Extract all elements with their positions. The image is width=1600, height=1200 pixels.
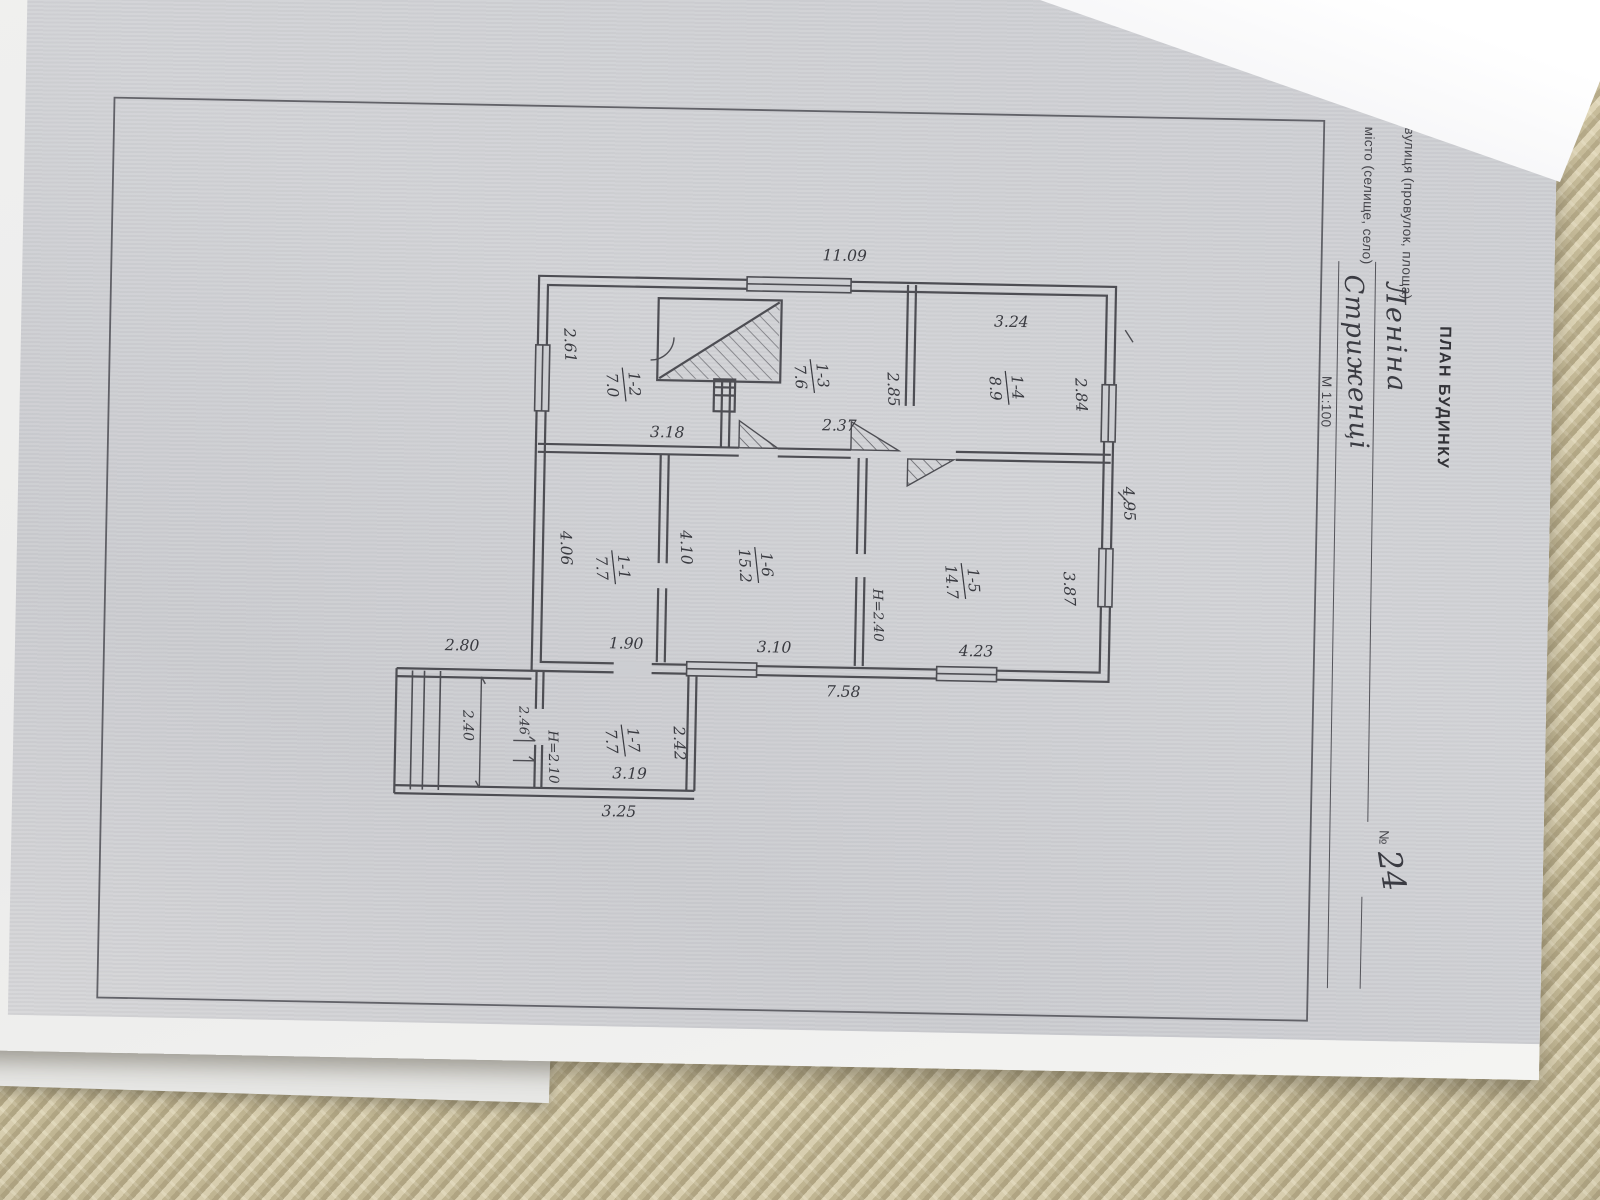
door-leaf-icon	[851, 422, 900, 451]
room-label-1-3: 1-3 7.6	[790, 358, 832, 395]
dim-1-1-a: 4.06	[556, 530, 575, 566]
floor-plan-svg: 11.09 7.58 4.95 1-4 8.9 2.84 3.24 1-3 7.…	[0, 0, 1561, 1080]
room-label-1-4: 1-4 8.9	[985, 370, 1027, 406]
room-label-1-6: 1-6 15.2	[735, 546, 777, 584]
dim-1-2-b: 3.18	[650, 423, 685, 442]
photo-of-house-plan-document: { "header": { "title": "ПЛАН БУДИНКУ", "…	[0, 0, 1600, 1200]
svg-text:15.2: 15.2	[735, 548, 755, 583]
door-leaf-icon	[907, 459, 954, 487]
dim-1-3-b: 2.37	[821, 416, 857, 435]
dim-overall-height: 11.09	[822, 246, 867, 265]
dim-1-5-h: Н=2.40	[869, 588, 886, 643]
interior-wall-14-13	[906, 285, 916, 406]
dim-1-6-a: 4.10	[676, 529, 695, 565]
dim-1-5-a: 3.87	[1060, 571, 1079, 606]
dim-overall-top: 4.95	[1119, 485, 1139, 521]
svg-text:1-3: 1-3	[812, 362, 832, 388]
document-paper: ПЛАН БУДИНКУ вулиця (провулок, площа) Ле…	[0, 0, 1561, 1080]
dim-1-4-b: 3.24	[994, 313, 1029, 332]
dim-1-7-b: 3.19	[612, 764, 647, 783]
svg-text:1-7: 1-7	[623, 727, 643, 753]
window-icon	[687, 662, 757, 677]
dim-1-4-a: 2.84	[1071, 376, 1090, 412]
door-leaf-icon	[739, 421, 779, 449]
window-icon	[1098, 549, 1113, 607]
document-content: ПЛАН БУДИНКУ вулиця (провулок, площа) Ле…	[0, 0, 1561, 1080]
room-label-1-7: 1-7 7.7	[601, 723, 643, 758]
window-icon	[936, 667, 996, 682]
room-label-1-1: 1-1 7.7	[592, 549, 634, 585]
dim-annex-outer: 3.25	[601, 802, 636, 821]
dim-1-7-a: 2.42	[670, 725, 689, 761]
dim-1-2-a: 2.61	[560, 327, 579, 363]
window-icon	[535, 345, 550, 411]
interior-wall-main	[538, 444, 1111, 463]
svg-text:7.0: 7.0	[603, 372, 622, 398]
svg-text:7.7: 7.7	[592, 555, 611, 581]
dim-porch-width: 2.40	[459, 709, 476, 742]
dim-1-3-a: 2.85	[883, 371, 902, 407]
interior-wall-15-16	[855, 458, 867, 666]
dim-overall-width: 7.58	[826, 682, 861, 701]
dim-1-6-b: 3.10	[757, 638, 792, 657]
svg-text:1-2: 1-2	[624, 371, 643, 397]
porch-steps	[410, 670, 440, 790]
window-symbols	[530, 273, 1119, 684]
dim-1-7-h: Н=2.10	[544, 729, 561, 784]
svg-text:1-6: 1-6	[757, 552, 776, 578]
door-opening	[614, 661, 652, 676]
room-label-1-5: 1-5 14.7	[941, 562, 983, 601]
window-icon	[747, 277, 851, 293]
plan-frame	[97, 98, 1324, 1021]
svg-text:1-1: 1-1	[614, 554, 633, 580]
interior-wall-16-11	[657, 454, 669, 662]
svg-text:7.6: 7.6	[791, 364, 811, 390]
svg-text:1-5: 1-5	[964, 567, 984, 593]
dim-annex-offset: 2.46	[515, 705, 530, 735]
outer-walls	[532, 276, 1116, 682]
svg-text:8.9: 8.9	[986, 376, 1005, 402]
room-label-1-2: 1-2 7.0	[602, 367, 644, 403]
window-icon	[1101, 385, 1116, 442]
stove-icon	[650, 298, 782, 412]
svg-text:14.7: 14.7	[941, 564, 961, 600]
dim-1-1-b: 1.90	[609, 634, 644, 653]
dim-porch-length: 2.80	[444, 636, 480, 655]
svg-text:1-4: 1-4	[1007, 374, 1026, 400]
dim-1-5-b: 4.23	[958, 642, 994, 661]
svg-text:7.7: 7.7	[601, 728, 621, 754]
interior-wall-12-13	[721, 381, 730, 447]
